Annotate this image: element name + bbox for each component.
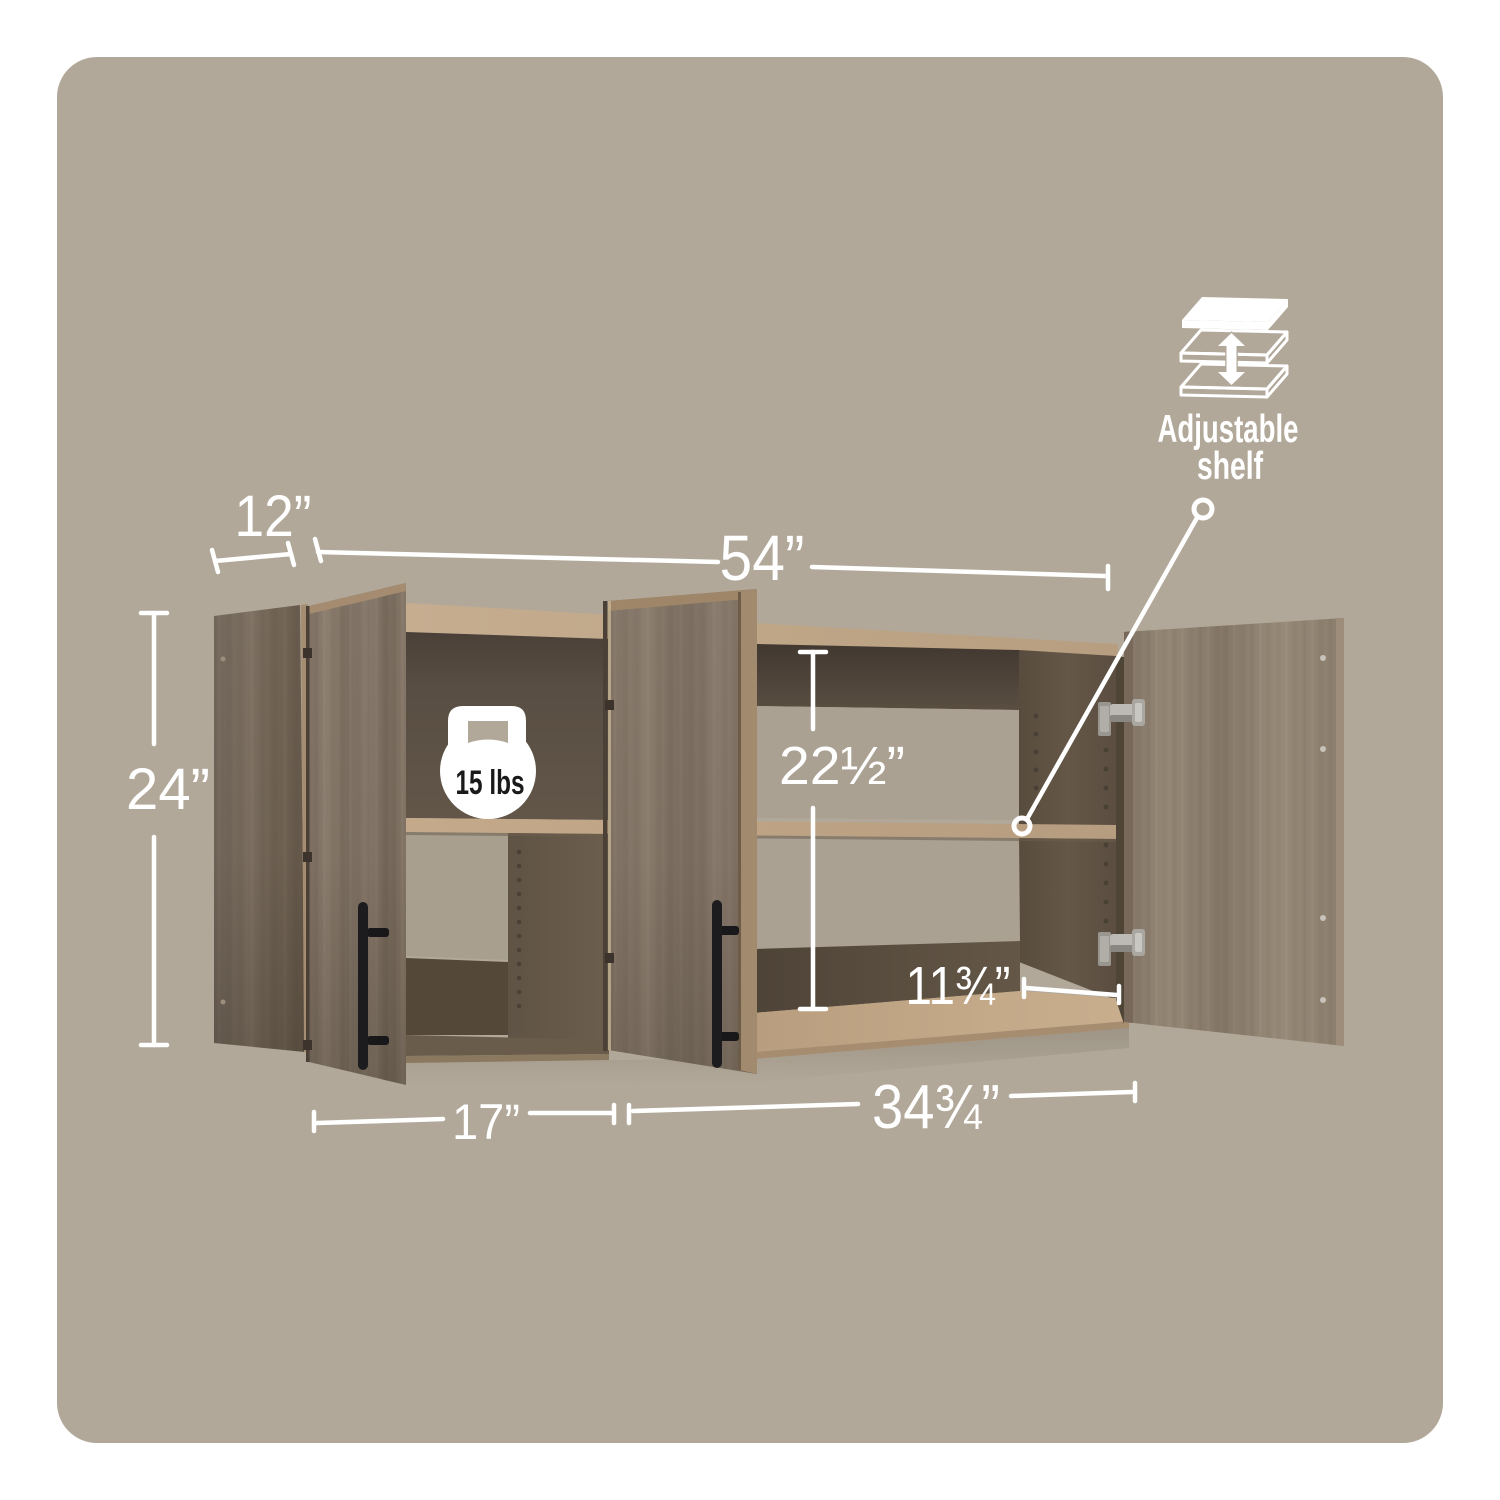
svg-text:22½”: 22½” — [779, 736, 905, 796]
svg-text:shelf: shelf — [1197, 445, 1264, 488]
svg-text:15 lbs: 15 lbs — [456, 764, 525, 802]
svg-text:34¾”: 34¾” — [872, 1073, 1000, 1142]
svg-text:11¾”: 11¾” — [906, 956, 1011, 1016]
svg-text:12”: 12” — [235, 484, 312, 549]
svg-text:17”: 17” — [452, 1094, 520, 1150]
svg-text:54”: 54” — [720, 522, 805, 594]
svg-text:24”: 24” — [126, 757, 210, 822]
